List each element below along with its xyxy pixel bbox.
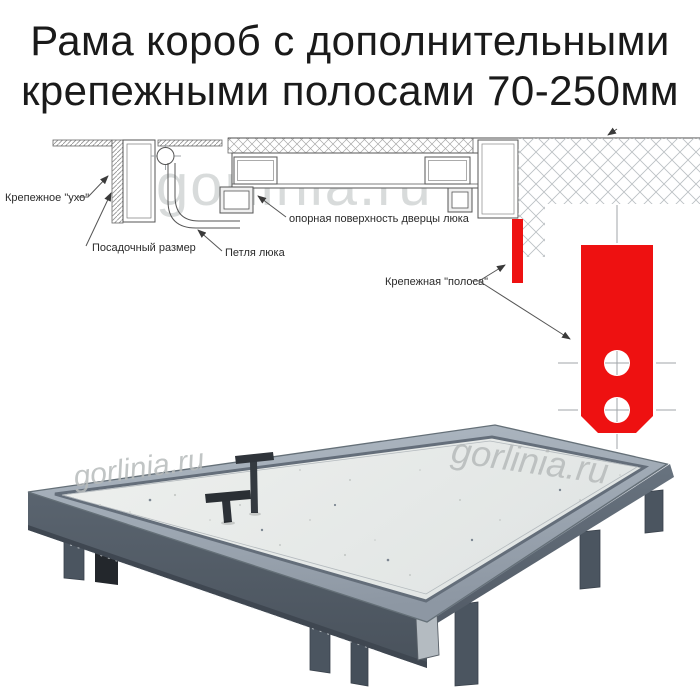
label-ear: Крепежное "ухо" bbox=[5, 192, 89, 204]
frame-box bbox=[123, 140, 155, 222]
frame-box-right bbox=[478, 140, 518, 218]
product-photo: gorlinia.ru gorlinia.ru bbox=[28, 425, 674, 686]
leg bbox=[645, 490, 663, 533]
ceiling-strip-left bbox=[53, 140, 112, 146]
label-hinge: Петля люка bbox=[225, 247, 286, 259]
label-seat: Посадочный размер bbox=[92, 242, 196, 254]
fastening-strip-inplace bbox=[512, 219, 523, 283]
technical-diagram: gorlinia.ru bbox=[5, 129, 700, 449]
door-top-band bbox=[228, 138, 473, 153]
wall-section-hatch bbox=[518, 138, 700, 257]
product-image-page: Рама короб с дополнительными крепежными … bbox=[0, 0, 700, 700]
label-strip: Крепежная "полоса" bbox=[385, 276, 488, 288]
image-canvas: gorlinia.ru bbox=[0, 0, 700, 700]
mounting-ear bbox=[112, 140, 123, 223]
hinge-pivot bbox=[157, 148, 174, 165]
leg bbox=[455, 602, 478, 686]
label-support: опорная поверхность дверцы люка bbox=[289, 213, 470, 225]
fastening-strip-detail bbox=[558, 205, 676, 449]
ceiling-strip-mid bbox=[158, 140, 222, 146]
leg bbox=[580, 530, 600, 589]
handle-stem bbox=[250, 461, 258, 513]
